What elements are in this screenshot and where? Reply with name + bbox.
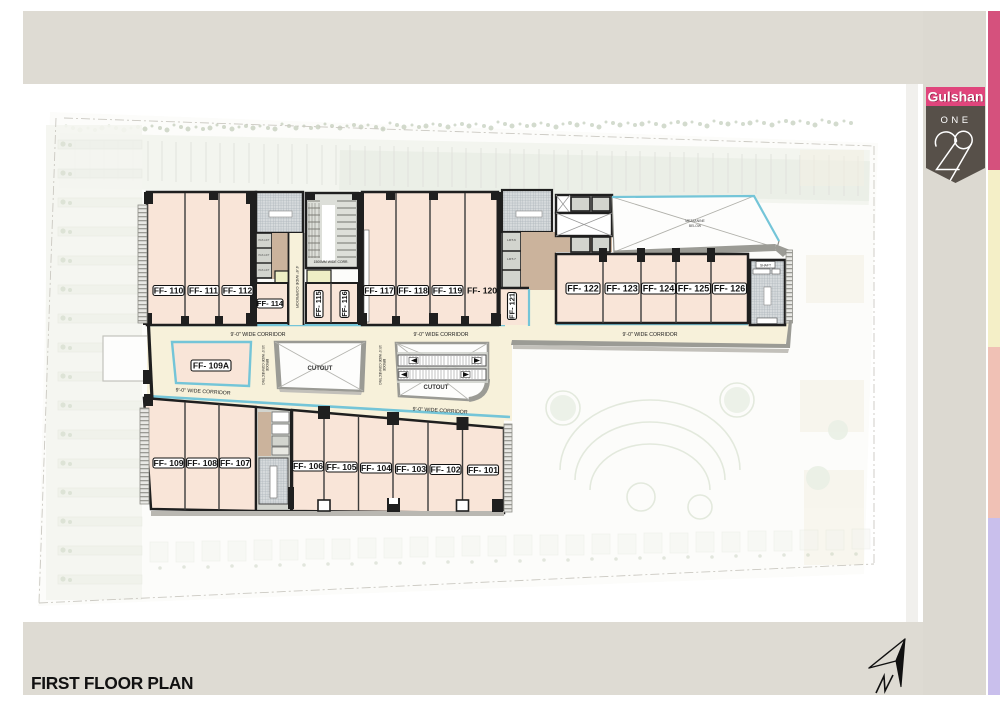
svg-text:FF- 122: FF- 122 bbox=[567, 284, 599, 294]
svg-text:FF- 110: FF- 110 bbox=[154, 286, 184, 296]
svg-text:FF- 115: FF- 115 bbox=[314, 291, 323, 316]
svg-text:Gulshan: Gulshan bbox=[927, 89, 983, 105]
svg-text:LIFT-7: LIFT-7 bbox=[507, 257, 516, 261]
svg-text:SHAFT: SHAFT bbox=[760, 264, 771, 268]
svg-text:FF- 121: FF- 121 bbox=[508, 293, 517, 319]
svg-text:CUTOUT: CUTOUT bbox=[308, 366, 333, 372]
svg-text:FF- 109A: FF- 109A bbox=[193, 361, 229, 371]
svg-text:FF- 114: FF- 114 bbox=[257, 299, 284, 308]
svg-text:4'-6" WIDE CORRIDOR: 4'-6" WIDE CORRIDOR bbox=[295, 266, 300, 309]
svg-text:FF- 106: FF- 106 bbox=[293, 461, 323, 471]
svg-text:FF- 118: FF- 118 bbox=[398, 286, 428, 296]
svg-text:9'-0" WIDE CORRIDOR: 9'-0" WIDE CORRIDOR bbox=[414, 332, 469, 338]
svg-text:FIRST FLOOR PLAN: FIRST FLOOR PLAN bbox=[31, 673, 193, 693]
svg-text:PAS LIFT: PAS LIFT bbox=[258, 268, 269, 272]
svg-text:ONE: ONE bbox=[940, 115, 971, 126]
svg-text:10'-0" WIDE CONNECTING: 10'-0" WIDE CONNECTING bbox=[261, 345, 265, 385]
svg-text:15'-0" WIDE CONNECTING: 15'-0" WIDE CONNECTING bbox=[378, 345, 382, 385]
svg-text:FF- 107: FF- 107 bbox=[220, 458, 250, 468]
svg-text:PAS LIFT: PAS LIFT bbox=[258, 253, 269, 257]
svg-text:LIFT-6: LIFT-6 bbox=[507, 238, 516, 242]
svg-text:MEZZANINE: MEZZANINE bbox=[685, 219, 705, 223]
svg-text:BELOW: BELOW bbox=[689, 224, 702, 228]
svg-text:FF- 101: FF- 101 bbox=[468, 465, 498, 475]
svg-text:FF- 123: FF- 123 bbox=[606, 284, 638, 294]
svg-text:FF- 103: FF- 103 bbox=[396, 464, 426, 474]
svg-text:1500MM WIDE CORR.: 1500MM WIDE CORR. bbox=[314, 260, 349, 264]
svg-text:FF- 125: FF- 125 bbox=[678, 284, 710, 294]
svg-text:FF- 119: FF- 119 bbox=[433, 286, 463, 296]
svg-text:FF- 105: FF- 105 bbox=[326, 462, 356, 472]
svg-text:CUTOUT: CUTOUT bbox=[424, 385, 449, 391]
svg-text:FF- 116: FF- 116 bbox=[340, 291, 349, 316]
svg-text:9'-0" WIDE CORRIDOR: 9'-0" WIDE CORRIDOR bbox=[231, 332, 286, 338]
svg-text:FF- 117: FF- 117 bbox=[364, 286, 394, 296]
svg-text:BRIDGE: BRIDGE bbox=[382, 359, 386, 371]
svg-text:FF- 104: FF- 104 bbox=[361, 463, 391, 473]
svg-text:9'-0" WIDE CORRIDOR: 9'-0" WIDE CORRIDOR bbox=[623, 332, 678, 338]
svg-text:BRIDGE: BRIDGE bbox=[265, 359, 269, 371]
svg-text:PAS LIFT: PAS LIFT bbox=[258, 238, 269, 242]
svg-text:FF- 109: FF- 109 bbox=[153, 458, 183, 468]
svg-text:FF- 120: FF- 120 bbox=[467, 286, 497, 296]
svg-text:FF- 126: FF- 126 bbox=[714, 284, 746, 294]
svg-text:FF- 124: FF- 124 bbox=[643, 284, 675, 294]
svg-text:FF- 102: FF- 102 bbox=[430, 465, 460, 475]
svg-text:FF- 108: FF- 108 bbox=[187, 458, 217, 468]
svg-text:FF- 111: FF- 111 bbox=[189, 286, 218, 296]
svg-text:FF- 112: FF- 112 bbox=[223, 286, 253, 296]
